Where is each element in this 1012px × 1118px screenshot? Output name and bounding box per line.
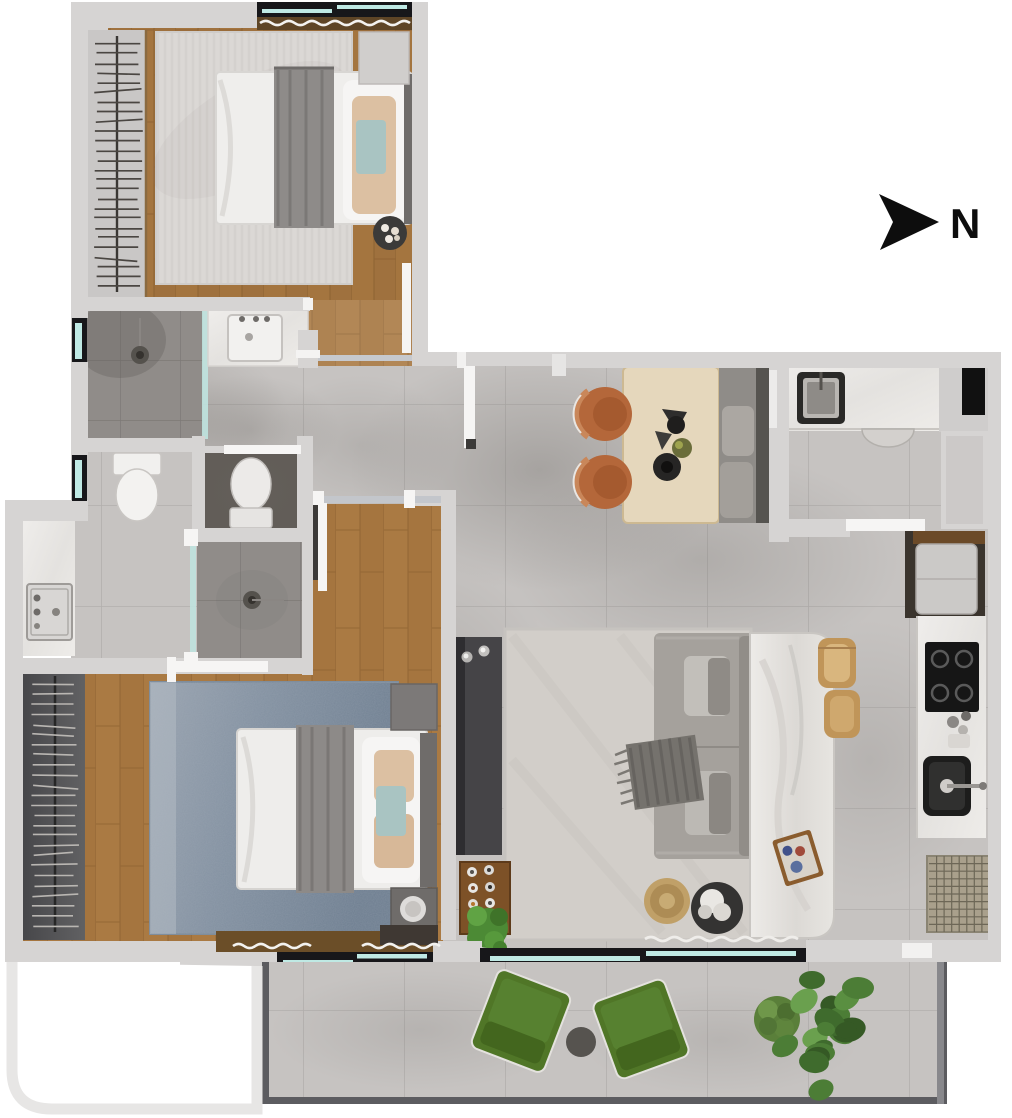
svg-text:N: N [950,200,980,247]
